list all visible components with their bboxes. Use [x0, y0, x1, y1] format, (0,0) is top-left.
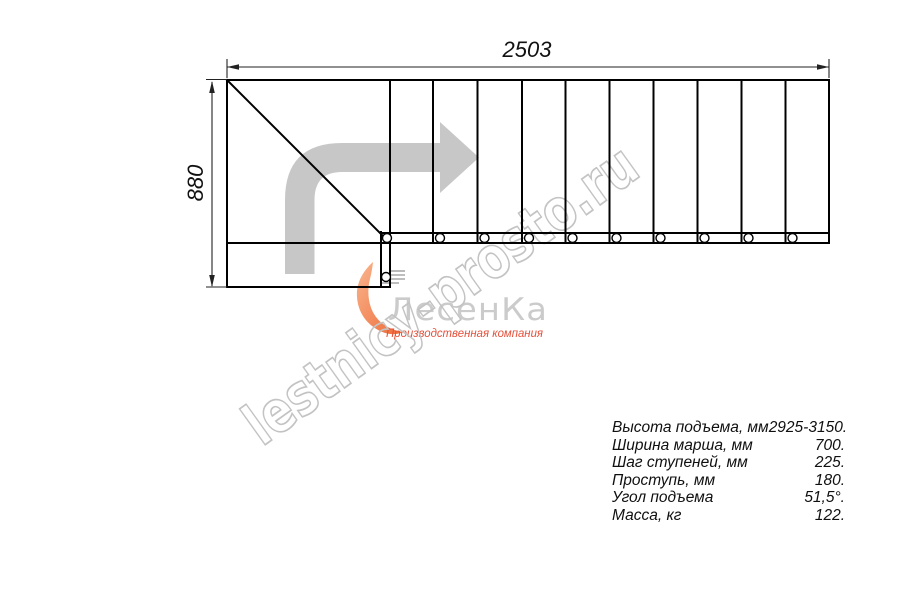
spec-value: 180. — [815, 472, 845, 490]
spec-label: Угол подъема — [612, 489, 713, 507]
stair-drawing-canvas: ЛесенКа Производственная компания lestni… — [0, 0, 900, 600]
dimension-height-label: 880 — [183, 164, 208, 201]
spec-label: Высота подъема, мм — [612, 419, 769, 437]
spec-value: 2925-3150. — [769, 419, 847, 437]
spec-value: 225. — [815, 454, 845, 472]
spec-value: 122. — [815, 507, 845, 525]
specs-table: Высота подъема, мм 2925-3150. Ширина мар… — [612, 419, 845, 525]
spec-row: Проступь, мм 180. — [612, 472, 845, 490]
spec-label: Масса, кг — [612, 507, 681, 525]
spec-row: Масса, кг 122. — [612, 507, 845, 525]
spec-row: Высота подъема, мм 2925-3150. — [612, 419, 845, 437]
spec-row: Угол подъема 51,5°. — [612, 489, 845, 507]
spec-value: 700. — [815, 437, 845, 455]
spec-row: Шаг ступеней, мм 225. — [612, 454, 845, 472]
spec-label: Шаг ступеней, мм — [612, 454, 748, 472]
spec-label: Проступь, мм — [612, 472, 715, 490]
spec-row: Ширина марша, мм 700. — [612, 437, 845, 455]
spec-label: Ширина марша, мм — [612, 437, 753, 455]
tread-lines — [433, 80, 786, 243]
dimension-height: 880 — [183, 80, 227, 288]
dimension-width: 2503 — [227, 37, 829, 78]
dimension-width-label: 2503 — [502, 37, 553, 62]
spec-value: 51,5°. — [804, 489, 845, 507]
